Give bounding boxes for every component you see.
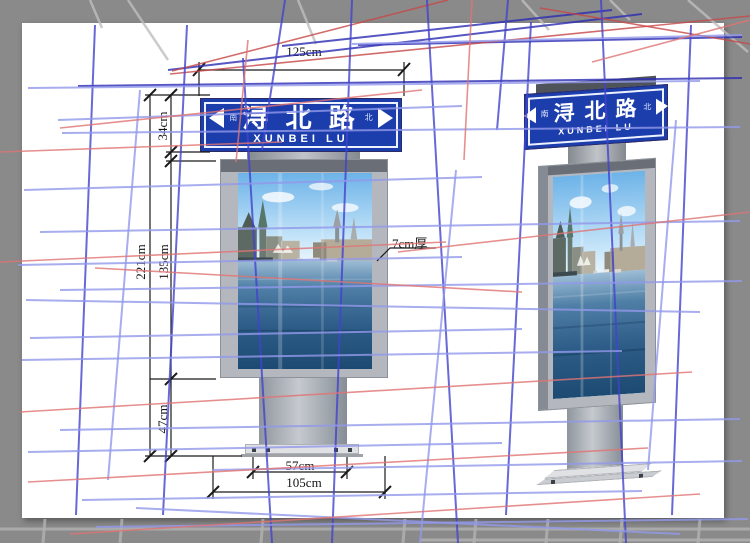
arrow-right-icon [656,98,668,115]
bolt-icon [551,480,555,484]
street-sign-side-face: 南 浔 北 路 北 XUNBEI LU [528,88,664,146]
dim-label-column-width: 57cm [286,458,315,474]
street-name-cn: 浔 北 路 [242,105,359,131]
street-sign-front-face: 南 浔 北 路 北 XUNBEI LU [204,102,398,148]
dim-label-base-height: 47cm [155,405,171,434]
street-sign-side-row: 南 浔 北 路 北 [524,95,669,126]
street-name-pinyin: XUNBEI LU [253,133,348,145]
dim-label-top-width: 125cm [286,44,321,60]
bolt-icon [252,448,256,452]
street-sign-front: 南 浔 北 路 北 XUNBEI LU [200,98,402,152]
direction-north-label: 北 [365,114,373,122]
lightbox-side [538,158,656,411]
arrow-left-icon [209,108,224,128]
arrow-right-icon [378,108,393,128]
lightbox-photo [238,173,372,369]
lightbox-top-bar-front [221,160,387,172]
base-shadow-front [241,454,363,457]
direction-south-label: 南 [541,110,549,119]
lightbox-front [220,159,388,378]
bolt-icon [334,448,338,452]
dim-label-overall-height: 221cm [133,244,149,279]
base-plate-front [245,444,359,454]
background: 南 浔 北 路 北 XUNBEI LU [0,0,750,543]
pedestal-front [259,378,347,444]
bolt-icon [639,474,643,478]
pedestal-side [567,405,623,469]
street-sign-side: 南 浔 北 路 北 XUNBEI LU [524,84,668,150]
street-sign-front-row: 南 浔 北 路 北 [209,105,392,131]
direction-south-label: 南 [229,114,237,122]
lightbox-side-face [539,166,548,410]
arrow-left-icon [524,107,536,124]
direction-north-label: 北 [643,103,651,112]
lightbox-photo [553,171,645,399]
dim-label-box-height: 135cm [156,244,172,279]
dim-label-base-width: 105cm [286,475,321,491]
dim-label-header-height: 34cm [155,112,171,141]
bolt-icon [266,448,270,452]
dim-label-thickness: 7cm厚 [392,233,427,252]
side-view: 南 浔 北 路 北 XUNBEI LU [524,75,668,505]
bolt-icon [348,448,352,452]
